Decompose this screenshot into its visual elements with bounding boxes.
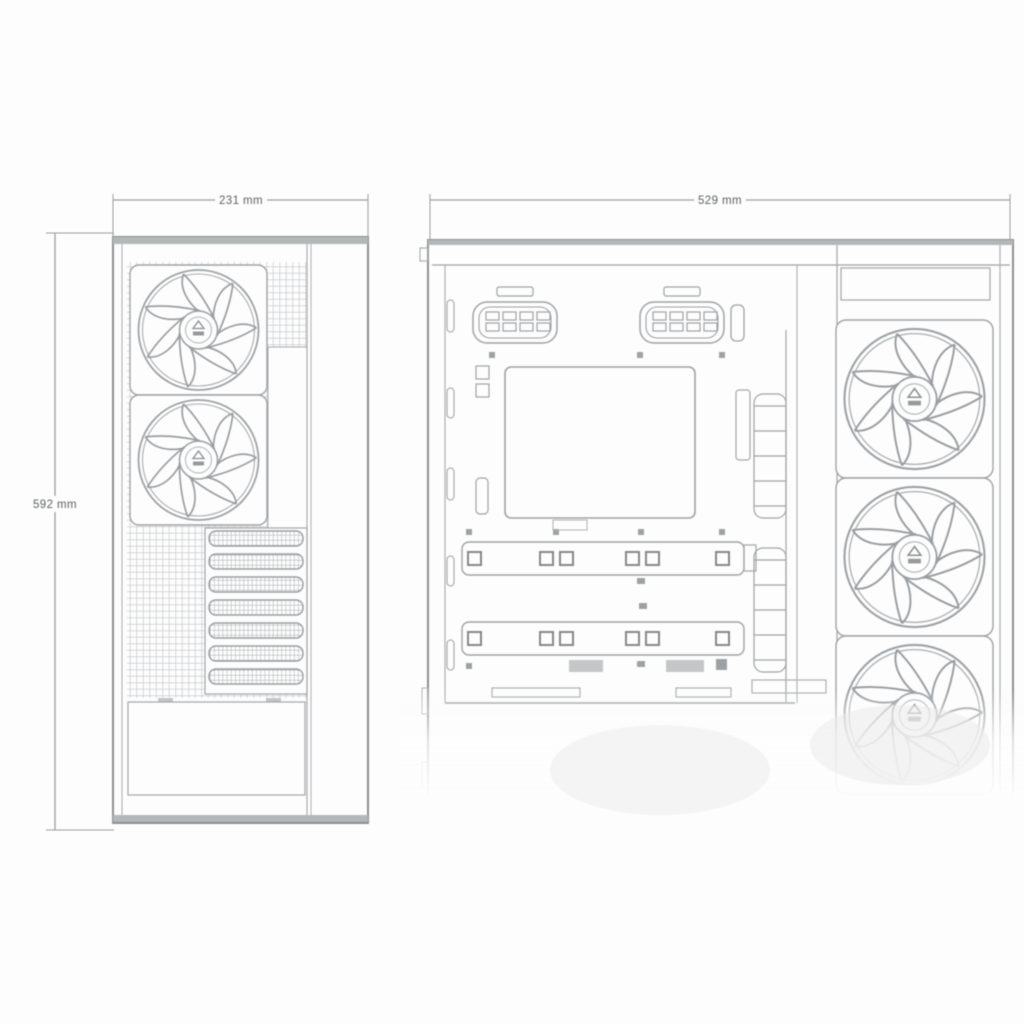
tray-slots-left [476, 366, 489, 514]
rail-tab [553, 520, 587, 530]
cable-grommet-1 [473, 287, 557, 343]
dim-height [46, 233, 114, 830]
vent-slats [205, 528, 307, 694]
drawing-svg: 231 mm 529 mm 592 mm [0, 0, 1024, 1024]
fan-column-top-cover [841, 268, 990, 300]
side-fan-2 [836, 478, 993, 636]
front-view [113, 237, 368, 823]
cable-grommet-2 [640, 287, 724, 343]
front-fan-2 [130, 395, 267, 525]
grommet-small [731, 305, 744, 341]
side-fan-1 [836, 320, 993, 478]
front-width-label: 231 mm [219, 195, 263, 207]
fade-overlay [400, 690, 1024, 1024]
front-bottom-panel [128, 702, 305, 795]
rear-slot-column [447, 300, 454, 670]
front-side-strip [268, 347, 307, 528]
side-width-label: 529 mm [698, 195, 742, 207]
label-plate-1 [569, 660, 603, 672]
cable-ladder [736, 330, 826, 703]
rail-screw-marks [466, 529, 727, 670]
side-view [400, 240, 1024, 1024]
technical-drawing-page: 231 mm 529 mm 592 mm [0, 0, 1024, 1024]
cpu-cutout [505, 367, 695, 518]
height-label: 592 mm [33, 499, 77, 511]
label-plate-2 [666, 660, 704, 672]
drive-rail-2 [462, 622, 744, 655]
front-fan-1 [130, 265, 267, 395]
drive-rail-1 [462, 542, 744, 575]
screw-marks-top [489, 352, 725, 358]
